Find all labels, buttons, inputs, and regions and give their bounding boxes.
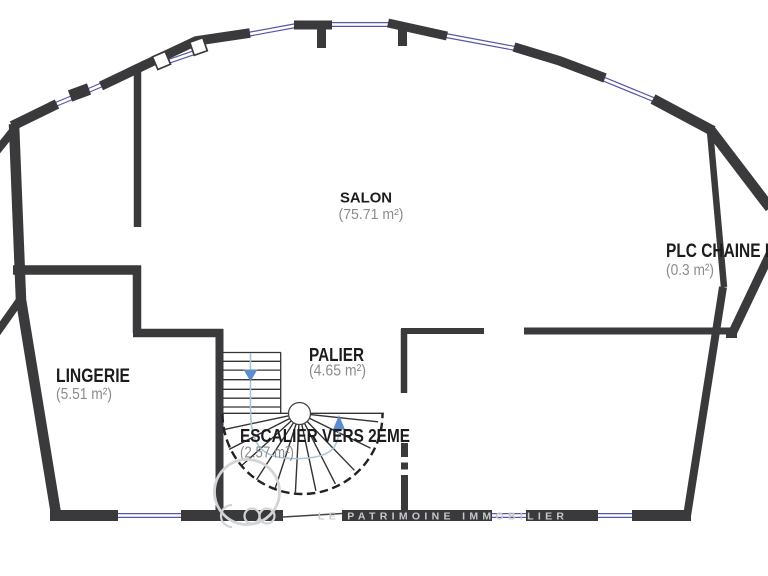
svg-text:(5.51 m²): (5.51 m²) xyxy=(56,386,112,403)
svg-text:(75.71 m²): (75.71 m²) xyxy=(339,207,404,223)
svg-text:SALON: SALON xyxy=(340,190,392,207)
svg-text:PLC CHAINE H: PLC CHAINE H xyxy=(666,241,768,262)
svg-text:ESCALIER VERS 2EME: ESCALIER VERS 2EME xyxy=(240,426,410,446)
svg-text:(0.3 m²): (0.3 m²) xyxy=(666,262,714,279)
svg-text:(4.65 m²): (4.65 m²) xyxy=(309,363,366,380)
svg-text:LINGERIE: LINGERIE xyxy=(56,366,130,387)
